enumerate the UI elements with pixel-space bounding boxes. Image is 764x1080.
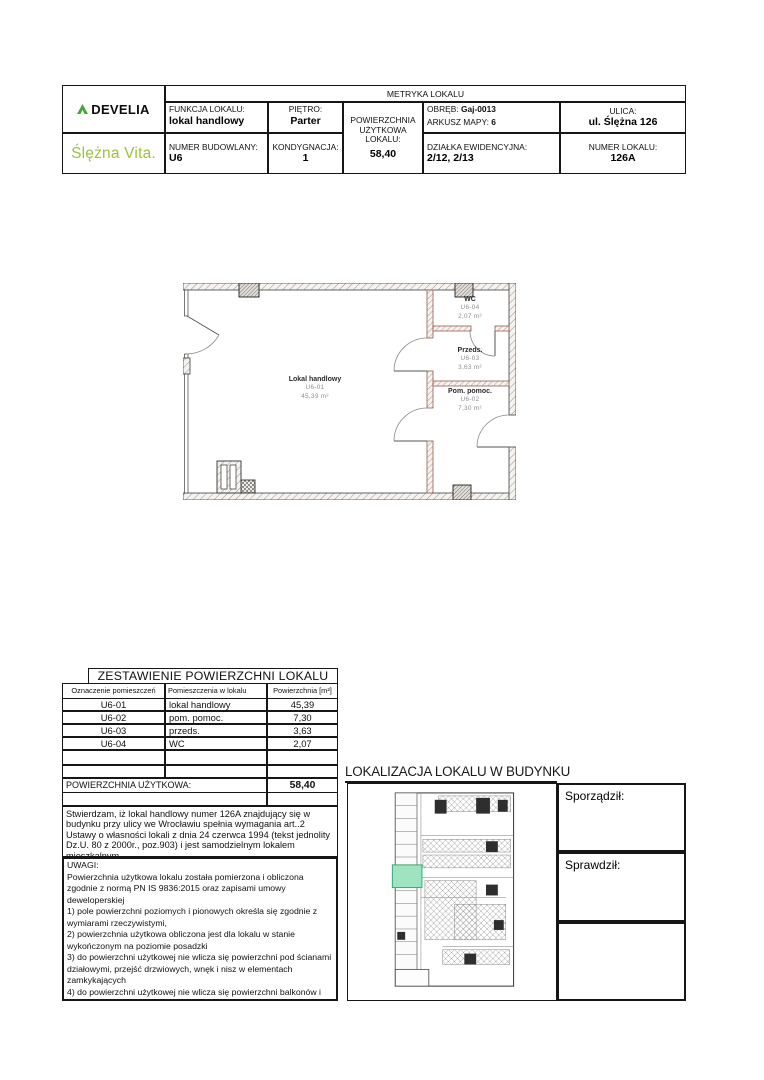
pietro-label: PIĘTRO:	[272, 105, 339, 115]
room-name: WC	[440, 295, 500, 304]
numer-lokalu-cell: NUMER LOKALU: 126A	[560, 133, 686, 174]
table-row: U6-04 WC 2,07	[62, 737, 338, 750]
room-label-wc: WC U6-04 2,07 m²	[440, 295, 500, 321]
room-area: 3,63 m²	[440, 364, 500, 373]
table-row: U6-02 pom. pomoc. 7,30	[62, 711, 338, 724]
room-area: 2,07 m²	[440, 313, 500, 322]
dzialka-value: 2/12, 2/13	[427, 152, 556, 164]
obreb-label: OBRĘB:	[427, 104, 459, 114]
uwagi-line: 1) pole powierzchni poziomych i pionowyc…	[67, 906, 333, 929]
building-plan-svg	[348, 784, 555, 999]
table-total-row: POWIERZCHNIA UŻYTKOWA: 58,40	[62, 778, 338, 793]
numer-budowlany-value: U6	[169, 152, 264, 164]
room-name: Lokal handlowy	[260, 375, 370, 384]
uwagi-line: 3) do powierzchni użytkowej nie wlicza s…	[67, 952, 333, 987]
obreb-cell: OBRĘB: Gaj-0013 ARKUSZ MAPY: 6	[423, 102, 560, 133]
table-row: U6-03 przeds. 3,63	[62, 724, 338, 737]
room-label-lokal-handlowy: Lokal handlowy U6-01 45,39 m²	[260, 375, 370, 401]
metryka-header-table: METRYKA LOKALU DEVELIA Ślężna Vita. FUNK…	[62, 85, 686, 174]
room-code: U6-04	[440, 304, 500, 313]
kondygnacja-label: KONDYGNACJA:	[272, 143, 339, 153]
sporzadzil-box: Sporządził:	[557, 783, 686, 852]
developia-logo-icon	[77, 104, 88, 114]
table-empty-row	[62, 765, 338, 778]
cell-code: U6-01	[62, 698, 165, 711]
uwagi-line: 4) do powierzchni użytkowej nie wlicza s…	[67, 987, 333, 1002]
numer-lokalu-label: NUMER LOKALU:	[564, 143, 682, 153]
table-row: U6-01 lokal handlowy 45,39	[62, 698, 338, 711]
room-area: 7,30 m²	[437, 405, 503, 414]
slezna-vita-logo-text: Ślężna Vita.	[71, 145, 156, 163]
col-header-pomieszczenia: Pomieszczenia w lokalu	[165, 683, 267, 699]
area-table-title: ZESTAWIENIE POWIERZCHNI LOKALU	[88, 668, 338, 684]
powierzchnia-cell: POWIERZCHNIA UŻYTKOWA LOKALU: 58,40	[343, 102, 423, 174]
header-title: METRYKA LOKALU	[165, 85, 686, 102]
unit-floor-plan: Lokal handlowy U6-01 45,39 m² WC U6-04 2…	[183, 283, 516, 500]
cell-room: WC	[165, 737, 267, 750]
cell-area: 2,07	[267, 737, 338, 750]
slezna-vita-logo: Ślężna Vita.	[62, 133, 165, 174]
room-label-przedsionek: Przeds. U6-03 3,63 m²	[440, 346, 500, 372]
numer-lokalu-value: 126A	[564, 152, 682, 164]
uwagi-line: 2) powierzchnia użytkowa obliczona jest …	[67, 929, 333, 952]
area-table-header-row: Oznaczenie pomieszczeń Pomieszczenia w l…	[62, 683, 338, 699]
document-page: METRYKA LOKALU DEVELIA Ślężna Vita. FUNK…	[0, 0, 764, 1080]
room-code: U6-01	[260, 384, 370, 393]
room-code: U6-03	[440, 355, 500, 364]
pietro-cell: PIĘTRO: Parter	[268, 102, 343, 133]
cell-room: lokal handlowy	[165, 698, 267, 711]
ulica-value: ul. Ślężna 126	[564, 116, 682, 128]
numer-budowlany-label: NUMER BUDOWLANY:	[169, 143, 264, 153]
dzialka-cell: DZIAŁKA EWIDENCYJNA: 2/12, 2/13	[423, 133, 560, 174]
cell-code: U6-03	[62, 724, 165, 737]
room-code: U6-02	[437, 396, 503, 405]
uwagi-title: UWAGI:	[67, 860, 333, 872]
cell-area: 45,39	[267, 698, 338, 711]
cell-area: 3,63	[267, 724, 338, 737]
kondygnacja-value: 1	[272, 152, 339, 164]
metryka-lokalu-sheet: METRYKA LOKALU DEVELIA Ślężna Vita. FUNK…	[62, 85, 686, 1001]
sporzadzil-label: Sporządził:	[565, 789, 678, 803]
table-empty-row	[62, 792, 338, 806]
sprawdzil-label: Sprawdził:	[565, 858, 678, 872]
room-name: Pom. pomoc.	[437, 387, 503, 396]
uwagi-box: UWAGI: Powierzchnia użytkowa lokalu zost…	[62, 857, 338, 1001]
pietro-value: Parter	[272, 115, 339, 127]
room-name: Przeds.	[440, 346, 500, 355]
obreb-value: Gaj-0013	[461, 104, 496, 114]
funkcja-label: FUNKCJA LOKALU:	[169, 105, 264, 115]
developia-logo: DEVELIA	[62, 85, 165, 133]
cell-code: U6-02	[62, 711, 165, 724]
powierzchnia-value: 58,40	[347, 148, 419, 160]
table-empty-row	[62, 750, 338, 765]
developia-logo-text: DEVELIA	[91, 102, 149, 117]
arkusz-line: ARKUSZ MAPY: 6	[427, 118, 556, 128]
numer-budowlany-cell: NUMER BUDOWLANY: U6	[165, 133, 268, 174]
arkusz-label: ARKUSZ MAPY:	[427, 117, 489, 127]
col-header-oznaczenie: Oznaczenie pomieszczeń	[62, 683, 165, 699]
cell-room: przeds.	[165, 724, 267, 737]
total-label: POWIERZCHNIA UŻYTKOWA:	[62, 778, 267, 793]
cell-area: 7,30	[267, 711, 338, 724]
uwagi-line: Powierzchnia użytkowa lokalu została pom…	[67, 872, 333, 907]
statement-box: Stwierdzam, iż lokal handlowy numer 126A…	[62, 806, 338, 857]
room-area: 45,39 m²	[260, 393, 370, 402]
col-header-powierzchnia: Powierzchnia [m²]	[267, 683, 338, 699]
kondygnacja-cell: KONDYGNACJA: 1	[268, 133, 343, 174]
funkcja-lokalu-cell: FUNKCJA LOKALU: lokal handlowy	[165, 102, 268, 133]
total-value: 58,40	[267, 778, 338, 793]
room-label-pom-pomoc: Pom. pomoc. U6-02 7,30 m²	[437, 387, 503, 413]
arkusz-value: 6	[491, 117, 496, 127]
building-plan-box	[347, 783, 557, 1001]
localization-heading: LOKALIZACJA LOKALU W BUDYNKU	[345, 764, 557, 783]
ulica-cell: ULICA: ul. Ślężna 126	[560, 102, 686, 133]
cell-code: U6-04	[62, 737, 165, 750]
powierzchnia-label: POWIERZCHNIA UŻYTKOWA LOKALU:	[347, 116, 419, 145]
obreb-line: OBRĘB: Gaj-0013	[427, 105, 556, 115]
unit-highlight	[392, 865, 422, 888]
sprawdzil-box: Sprawdził:	[557, 852, 686, 922]
signature-empty-box	[557, 922, 686, 1001]
cell-room: pom. pomoc.	[165, 711, 267, 724]
dzialka-label: DZIAŁKA EWIDENCYJNA:	[427, 143, 556, 153]
funkcja-value: lokal handlowy	[169, 115, 264, 127]
ulica-label: ULICA:	[564, 107, 682, 117]
